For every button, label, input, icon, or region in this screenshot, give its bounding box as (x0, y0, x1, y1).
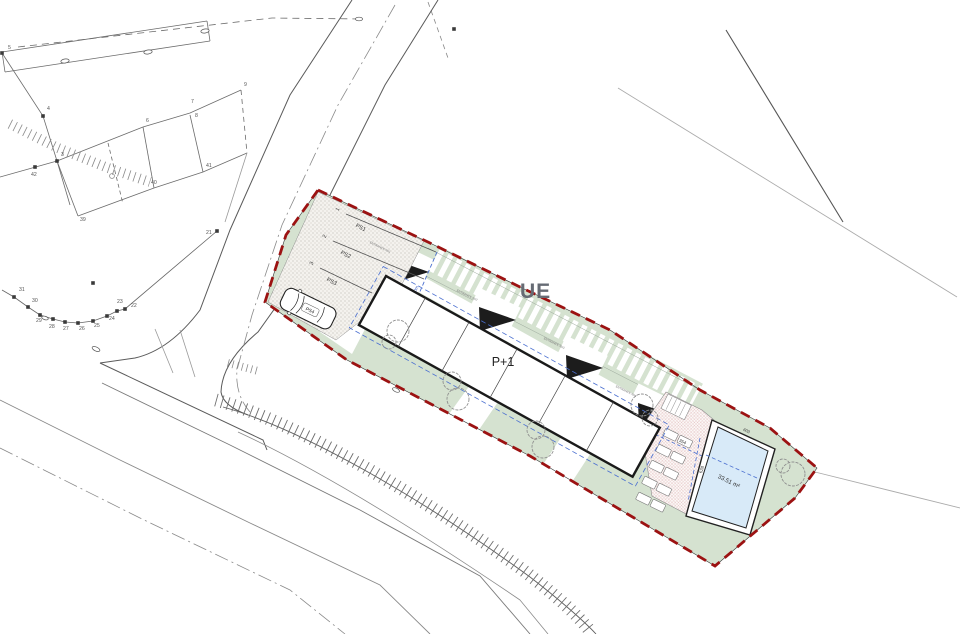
survey-point-40: 40 (151, 180, 157, 186)
survey-point-21: 21 (206, 230, 212, 236)
survey-point-numbers: 3 4 5 6 7 8 9 21 22 23 24 25 26 27 28 29… (8, 45, 247, 332)
survey-point-26: 26 (79, 326, 85, 332)
survey-point-31: 31 (19, 287, 25, 293)
survey-point-5: 5 (8, 45, 11, 51)
survey-point-23: 23 (117, 299, 123, 305)
survey-point-28: 28 (49, 324, 55, 330)
survey-point-30: 30 (32, 298, 38, 304)
site-plan-drawing: 5.50m PS4 PS1 PS2 PS3 1 2 3 (0, 0, 960, 634)
zone-label: UE (520, 280, 551, 303)
survey-point-27: 27 (63, 326, 69, 332)
survey-point-8: 8 (195, 113, 198, 119)
survey-point-6: 6 (146, 118, 149, 124)
survey-point-4: 4 (47, 106, 50, 112)
survey-point-24: 24 (109, 316, 115, 322)
survey-point-9: 9 (244, 82, 247, 88)
survey-point-41: 41 (206, 163, 212, 169)
survey-point-7: 7 (191, 99, 194, 105)
survey-point-29: 29 (36, 318, 42, 324)
site-plan-page: 5.50m PS4 PS1 PS2 PS3 1 2 3 (0, 0, 960, 634)
survey-point-25: 25 (94, 323, 100, 329)
survey-point-39: 39 (80, 217, 86, 223)
site-area: 5.50m PS4 PS1 PS2 PS3 1 2 3 (265, 190, 817, 566)
survey-point-3: 3 (61, 152, 64, 158)
building-label: P+1 (492, 355, 515, 369)
survey-point-22: 22 (131, 303, 137, 309)
survey-point-42: 42 (31, 172, 37, 178)
